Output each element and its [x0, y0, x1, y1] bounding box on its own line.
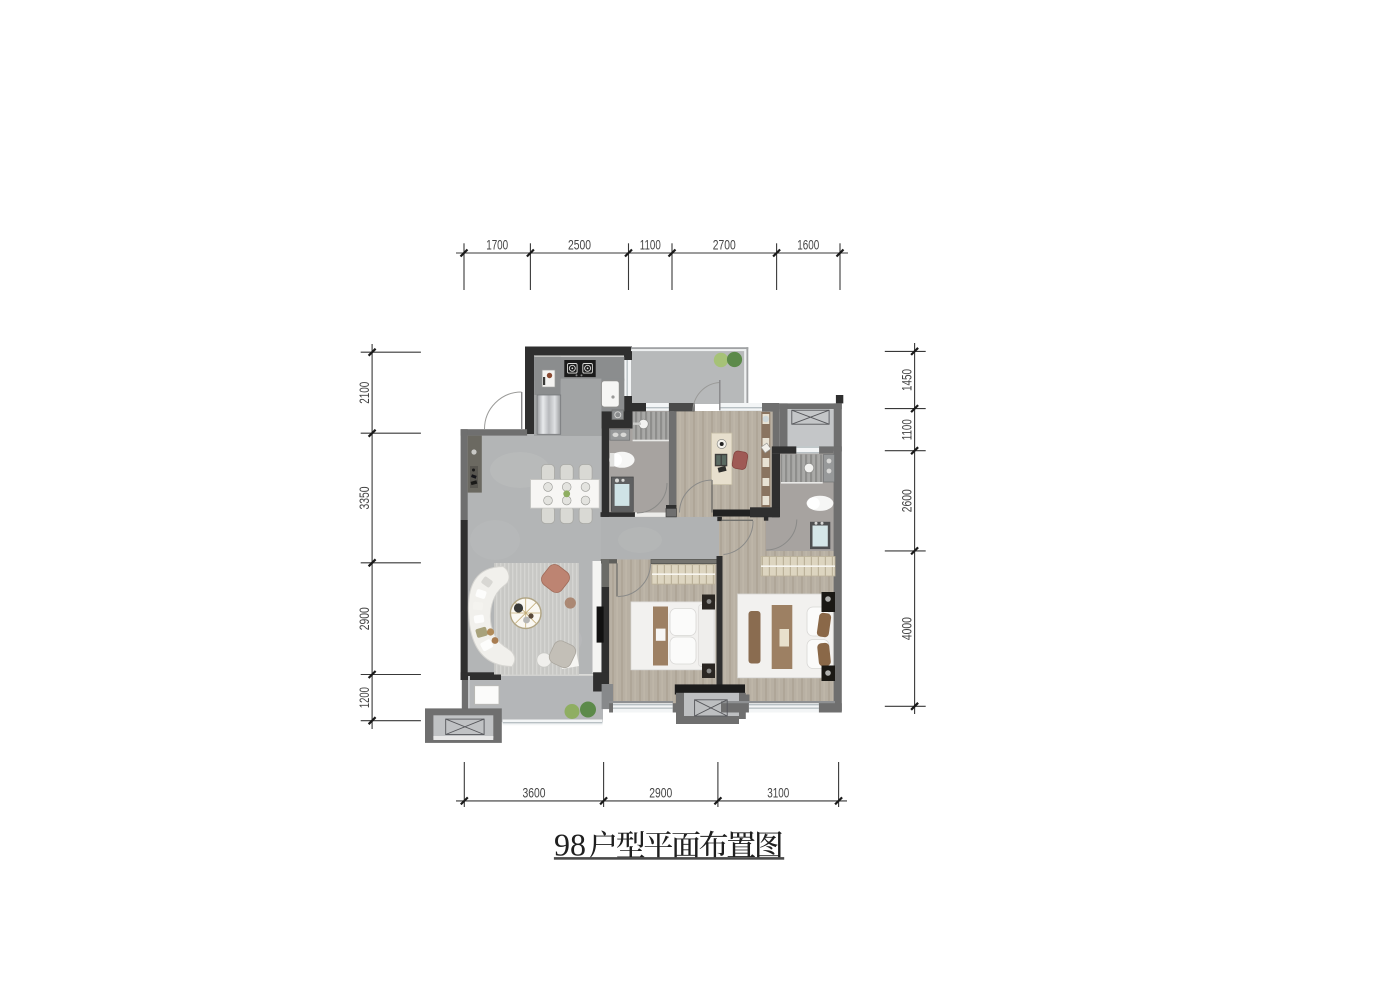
- svg-text:1200: 1200: [356, 687, 372, 708]
- svg-text:2900: 2900: [649, 784, 672, 800]
- svg-text:3600: 3600: [523, 784, 546, 800]
- svg-text:2100: 2100: [356, 382, 372, 404]
- svg-text:2500: 2500: [568, 237, 591, 253]
- svg-text:2900: 2900: [356, 607, 372, 630]
- svg-text:3350: 3350: [356, 486, 372, 509]
- svg-text:2700: 2700: [713, 237, 736, 253]
- svg-text:3100: 3100: [767, 784, 789, 800]
- svg-text:1100: 1100: [899, 419, 915, 440]
- svg-text:1700: 1700: [486, 237, 508, 253]
- svg-text:2600: 2600: [899, 489, 915, 512]
- svg-text:1450: 1450: [899, 369, 915, 391]
- svg-text:4000: 4000: [899, 617, 915, 640]
- svg-text:1600: 1600: [797, 237, 819, 253]
- svg-text:1100: 1100: [640, 237, 661, 253]
